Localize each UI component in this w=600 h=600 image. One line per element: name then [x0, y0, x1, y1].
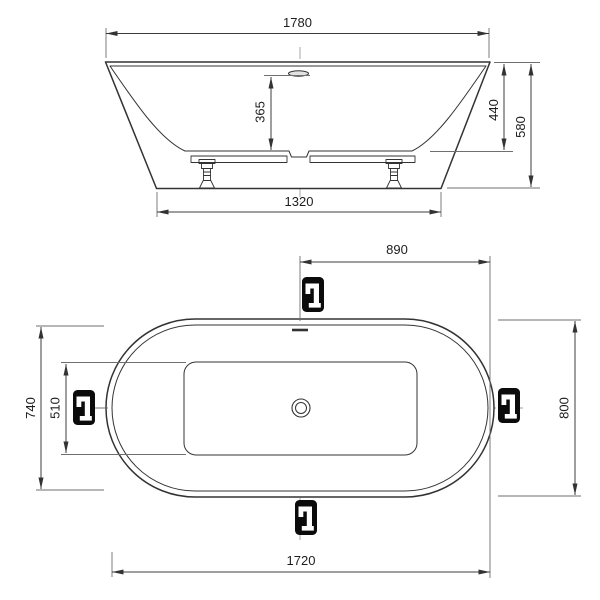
plan-view: 890 740 510 800 1720	[23, 242, 581, 578]
bathtub-technical-drawing: 1780 365 440 580 1320	[0, 0, 600, 600]
dim-label-center-to-edge: 890	[386, 242, 408, 257]
dim-label-base-width: 1320	[285, 194, 314, 209]
dim-label-overall-height: 580	[513, 116, 528, 138]
tub-outer-profile	[106, 62, 491, 189]
dim-label-top-width: 1780	[283, 15, 312, 30]
dim-label-inner-depth: 365	[253, 101, 268, 123]
faucet-icon	[73, 390, 95, 425]
faucet-icon	[295, 500, 317, 535]
dim-label-inner-rim-width: 740	[23, 397, 38, 419]
front-elevation-view: 1780 365 440 580 1320	[106, 15, 541, 217]
dim-label-rim-to-floor: 440	[486, 99, 501, 121]
faucet-icon	[302, 277, 324, 312]
plan-tub-body	[106, 319, 494, 497]
front-tub-body	[106, 62, 491, 189]
dim-label-overall-width: 800	[557, 397, 572, 419]
faucet-icon	[498, 388, 520, 423]
dim-label-base-length: 1720	[287, 553, 316, 568]
drawing-canvas: 1780 365 440 580 1320	[0, 0, 600, 600]
tub-rim-outer	[106, 319, 494, 497]
dim-label-floor-width: 510	[48, 397, 63, 419]
